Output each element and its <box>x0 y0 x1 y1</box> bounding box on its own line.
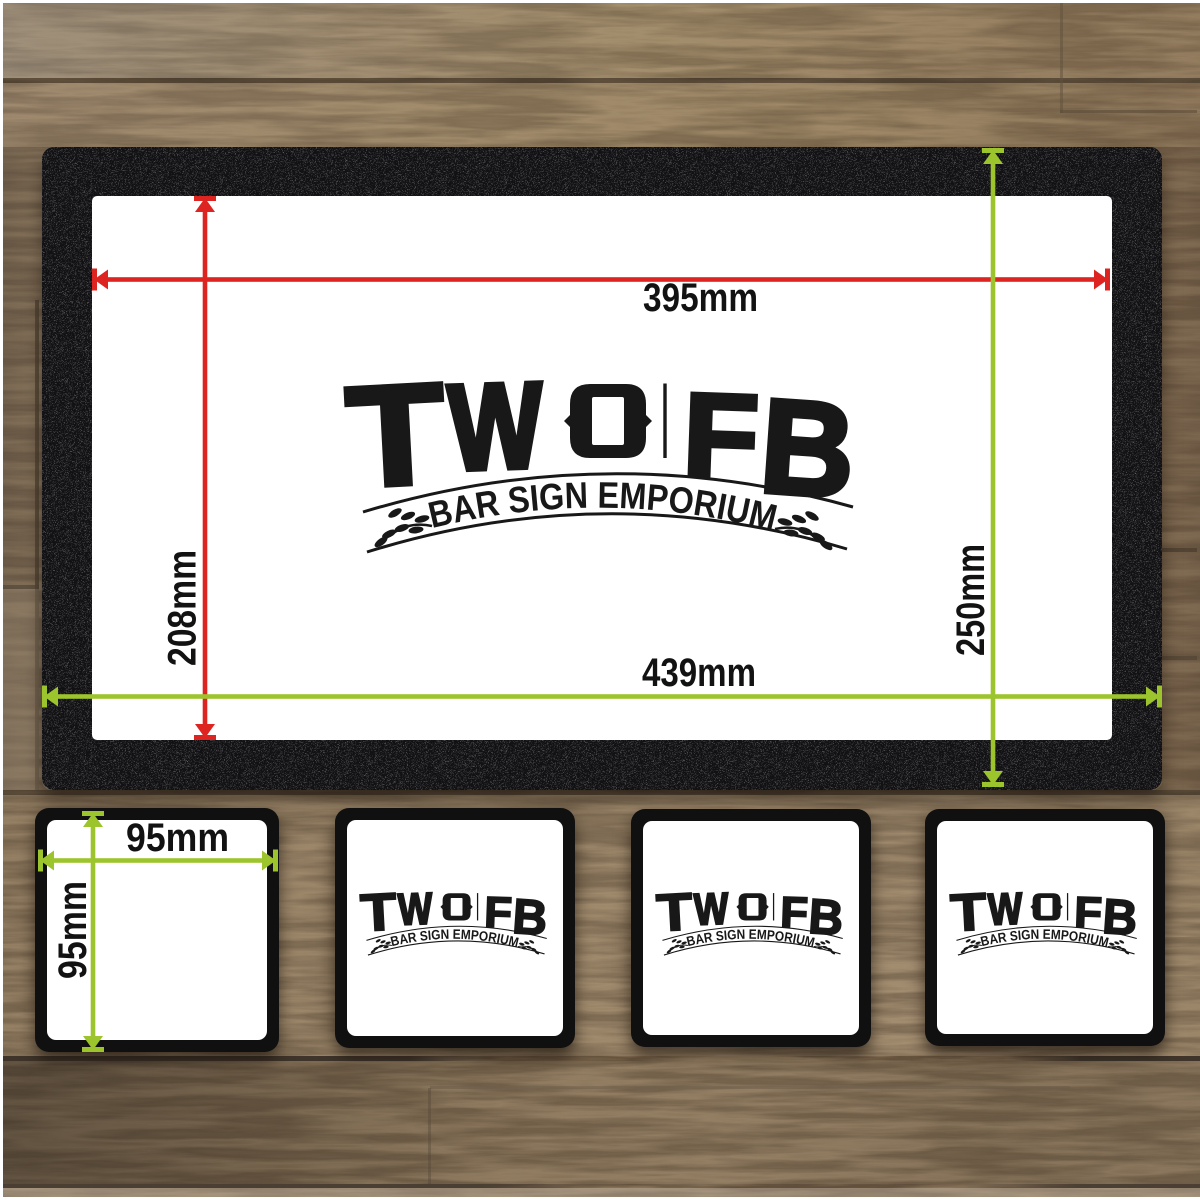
svg-text:95mm: 95mm <box>126 816 229 860</box>
svg-text:95mm: 95mm <box>51 881 95 979</box>
